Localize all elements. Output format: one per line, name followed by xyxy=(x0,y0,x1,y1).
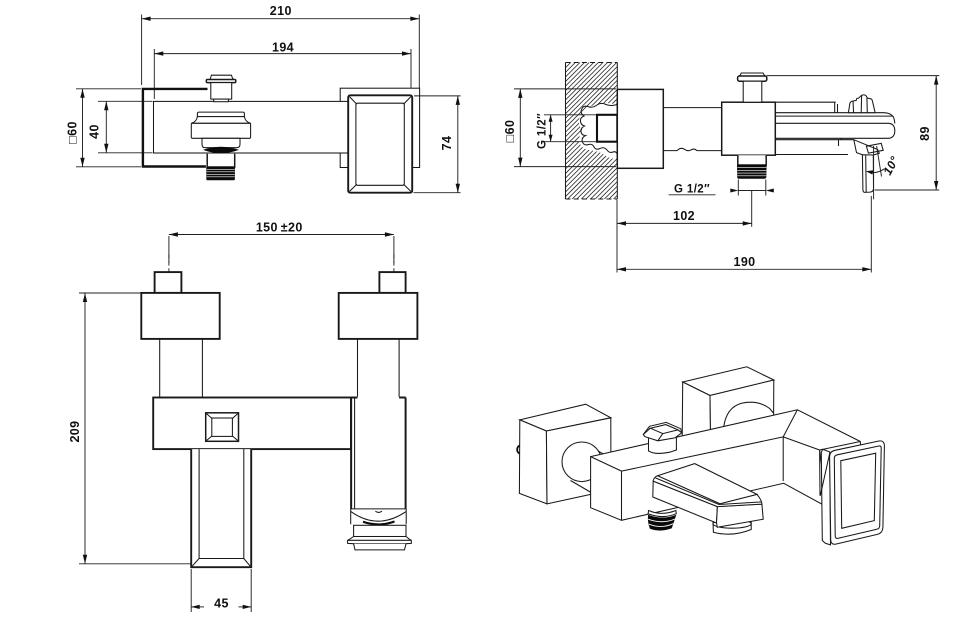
svg-text:G 1/2″: G 1/2″ xyxy=(674,184,710,196)
svg-text:209: 209 xyxy=(68,420,82,442)
svg-text:45: 45 xyxy=(214,597,229,611)
svg-text:74: 74 xyxy=(440,136,454,151)
svg-text:□60: □60 xyxy=(503,120,517,143)
svg-text:102: 102 xyxy=(673,209,695,223)
svg-text:89: 89 xyxy=(918,126,932,141)
svg-text:40: 40 xyxy=(87,124,101,139)
svg-text:210: 210 xyxy=(270,4,292,18)
svg-text:194: 194 xyxy=(272,41,294,55)
svg-text:□60: □60 xyxy=(66,121,80,144)
svg-text:150 ±20: 150 ±20 xyxy=(256,221,303,235)
svg-text:G 1/2″: G 1/2″ xyxy=(536,113,548,149)
svg-text:190: 190 xyxy=(733,255,755,269)
